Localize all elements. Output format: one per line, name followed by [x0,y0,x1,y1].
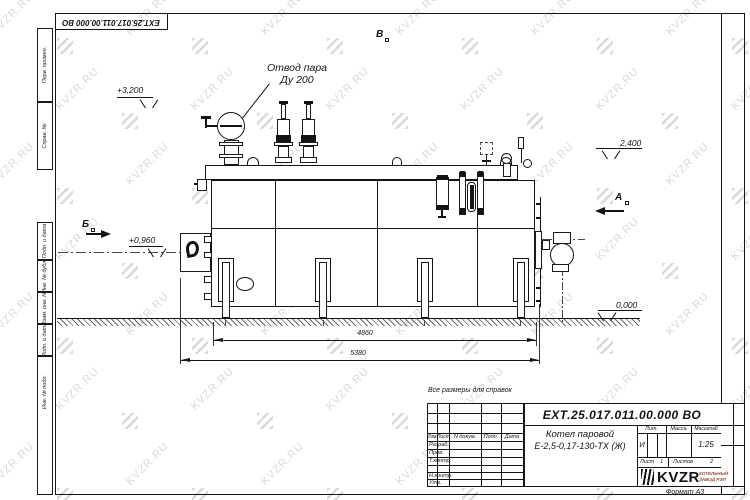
tb-scale-label: Масштаб [691,427,721,432]
tb-sheet-value: 1 [660,460,663,466]
tb-row-tkontr: Т.контр. [429,459,451,465]
tb-line [481,403,482,487]
view-arrow-tail [86,233,102,235]
ground-hatch [57,318,640,326]
kvzr-logo-text: KVZR [657,470,700,485]
margin-label: Перв. примен. [42,47,48,84]
tb-line [637,467,721,468]
kvzr-logo-sub1: КОТЕЛЬНЫЙ [699,472,728,477]
elevation-symbol [143,98,155,108]
top-stamp-text: ЕХТ.25.017.011.00.000 ВО [56,18,166,26]
elevation-symbol [151,247,163,257]
front-stub-2 [204,252,212,258]
view-label-a-subscript [625,201,629,205]
view-label-b: Б [82,220,89,230]
gauge-rod [521,149,522,163]
tb-product-name-2: Е-2,5-0,17-130-ТХ (Ж) [523,442,637,451]
tb-lit-label: Лит. [637,427,666,433]
elevation-text: 0,000 [616,301,637,310]
front-stub-4 [204,293,212,300]
view-label-b-subscript [91,228,95,232]
dim-arrow [181,358,190,362]
ladder-rung [536,217,541,219]
tb-sheet-label: Лист [640,460,654,466]
watermark-text: KVZR.RU [0,440,36,488]
handhole-cover [236,277,254,291]
front-stub-1 [204,236,212,243]
dim-arrow [530,358,539,362]
ladder-rung [536,300,541,302]
tb-product-name-1: Котел паровой [523,430,637,440]
view-arrow-head [595,207,605,215]
watermark-text: KVZR.RU [0,140,36,188]
elevation-text: +0,960 [129,236,155,245]
body-panel-line-2 [377,180,378,307]
tb-col-podp: Подп. [481,435,501,441]
front-stub-3 [204,276,212,283]
tb-line [637,425,638,487]
kvzr-logo-sub2: ЗАВОД РЭП [699,478,726,483]
top-stamp-box: ЕХТ.25.017.011.00.000 ВО [55,13,168,30]
view-arrow-head [101,230,111,238]
ext-line [539,304,540,364]
tb-line [427,423,523,424]
dim-line-5380 [181,360,539,361]
tb-line [647,433,648,457]
ladder-rung [536,287,541,289]
front-top-pipe-flange [194,183,198,185]
margin-label: Инв. № дубл. [42,259,48,293]
tb-row-prov: Пров. [429,451,444,457]
dim-arrow [214,338,223,342]
boiler-body [211,180,535,307]
fan-foot [552,264,569,272]
rear-flange-column [535,231,542,269]
tb-row-razrab: Разраб. [429,443,449,449]
watermark-text: KVZR.RU [0,290,36,338]
margin-cell-podp-data-2: Подп. и дата [37,324,53,356]
tb-row-utv: Утв. [429,481,442,487]
view-arrow-tail [604,210,624,212]
margin-cell-inv-dubl: Инв. № дубл. [37,260,53,292]
tb-line [668,457,669,467]
margin-cell-perv-primen: Перв. примен. [37,28,53,102]
tb-mass-label: Масса [666,427,691,433]
elevation-text: +3,200 [117,86,143,95]
margin-cell-podp-data-1: Подп. и дата [37,222,53,260]
boiler-top-strip [205,165,518,180]
tb-col-data: Дата [501,435,523,441]
dim-line-4860 [214,340,536,341]
support-leg-post [222,262,230,318]
tb-col-list: Лист [437,435,449,440]
ext-line [213,322,214,346]
water-column-cap [460,208,465,214]
tb-scale-value: 1:25 [691,441,721,449]
water-column-cap [460,171,465,177]
safety-valve-stem [306,104,311,119]
margin-label: Взам. инв. № [42,291,48,325]
hidden-hatch-outline [480,142,493,155]
margin-label: Справ. № [42,124,48,149]
steam-pipe-flange-lower [219,154,243,158]
callout-line1: Отвод пара [262,63,332,74]
handwheel-link [207,125,218,127]
tb-line [501,403,502,487]
tb-line [657,433,658,457]
steam-pipe-flange-upper [219,142,243,146]
margin-cell-sprav-no: Справ. № [37,102,53,170]
kvzr-logo-icon [641,469,654,485]
callout-line2: Ду 200 [262,75,332,86]
ext-line [180,278,181,364]
level-gauge-cap-top [437,175,448,180]
ext-line [536,322,537,346]
margin-label: Инв. № подл. [42,375,48,409]
elevation-symbol [605,149,617,159]
safety-valve-base [300,157,317,163]
tb-col-izm: Изм. [427,435,437,440]
elevation-symbol [601,311,613,321]
handwheel-stem [205,119,207,128]
tb-line [721,445,745,446]
tb-sheets-label: Листов [673,460,693,466]
tb-line [637,433,721,434]
body-horizontal-seam [211,228,535,229]
support-leg-post [319,262,327,318]
view-label-v: В [376,30,383,40]
water-column-cap [478,208,483,214]
lifting-lug [392,157,402,165]
safety-valve-band [276,135,291,142]
reference-note: Все размеры для справок [428,387,512,394]
gauge-rod-top [518,137,524,149]
sight-glass-core [470,185,474,209]
tb-designation: ЕХТ.25.017.011.00.000 ВО [525,409,719,421]
level-gauge-drain-tick [438,216,446,218]
support-leg-post [517,262,525,318]
water-column-cap [478,171,483,177]
steam-valve-spindle [220,125,242,127]
tb-line [427,413,523,414]
tb-line [637,457,721,458]
safety-valve-stem [281,104,286,119]
hatch-tick [482,160,491,162]
lifting-lug [247,157,259,165]
rear-duct-spacer [542,240,550,250]
support-leg-post [421,262,429,318]
rear-valve-body [503,163,511,177]
margin-label: Подп. и дата [42,323,48,357]
dim-text-5380: 5380 [338,350,378,357]
body-panel-line-1 [275,180,276,307]
elevation-text: 2,400 [620,139,641,148]
margin-cell-vzam-inv: Взам. инв. № [37,292,53,324]
view-label-a: А [615,193,622,203]
ladder-rung [536,203,541,205]
dim-text-4860: 4860 [345,330,385,337]
elevation-shelf [596,148,642,149]
tb-sheets-value: 2 [710,460,713,466]
gauge-ring [523,159,532,168]
margin-label: Подп. и дата [42,224,48,258]
safety-valve-base [275,157,292,163]
margin-cell-inv-podl-label-zone: Инв. № подл. [37,356,53,428]
tb-row-nkontr: Н.контр. [429,474,452,480]
fan-axis [562,268,563,323]
tb-col-doc: N докум. [449,435,481,441]
tb-line [427,465,523,466]
view-label-v-subscript [385,38,389,42]
dim-arrow [527,338,536,342]
drawing-sheet: KVZR.RUKVZR.RUKVZR.RUKVZR.RUKVZR.RUKVZR.… [0,0,750,500]
watermark-text: KVZR.RU [0,0,36,38]
front-top-pipe [197,179,207,191]
format-label: Формат А3 [650,489,720,496]
safety-valve-band [301,135,316,142]
tb-lit-value: И [637,441,647,449]
